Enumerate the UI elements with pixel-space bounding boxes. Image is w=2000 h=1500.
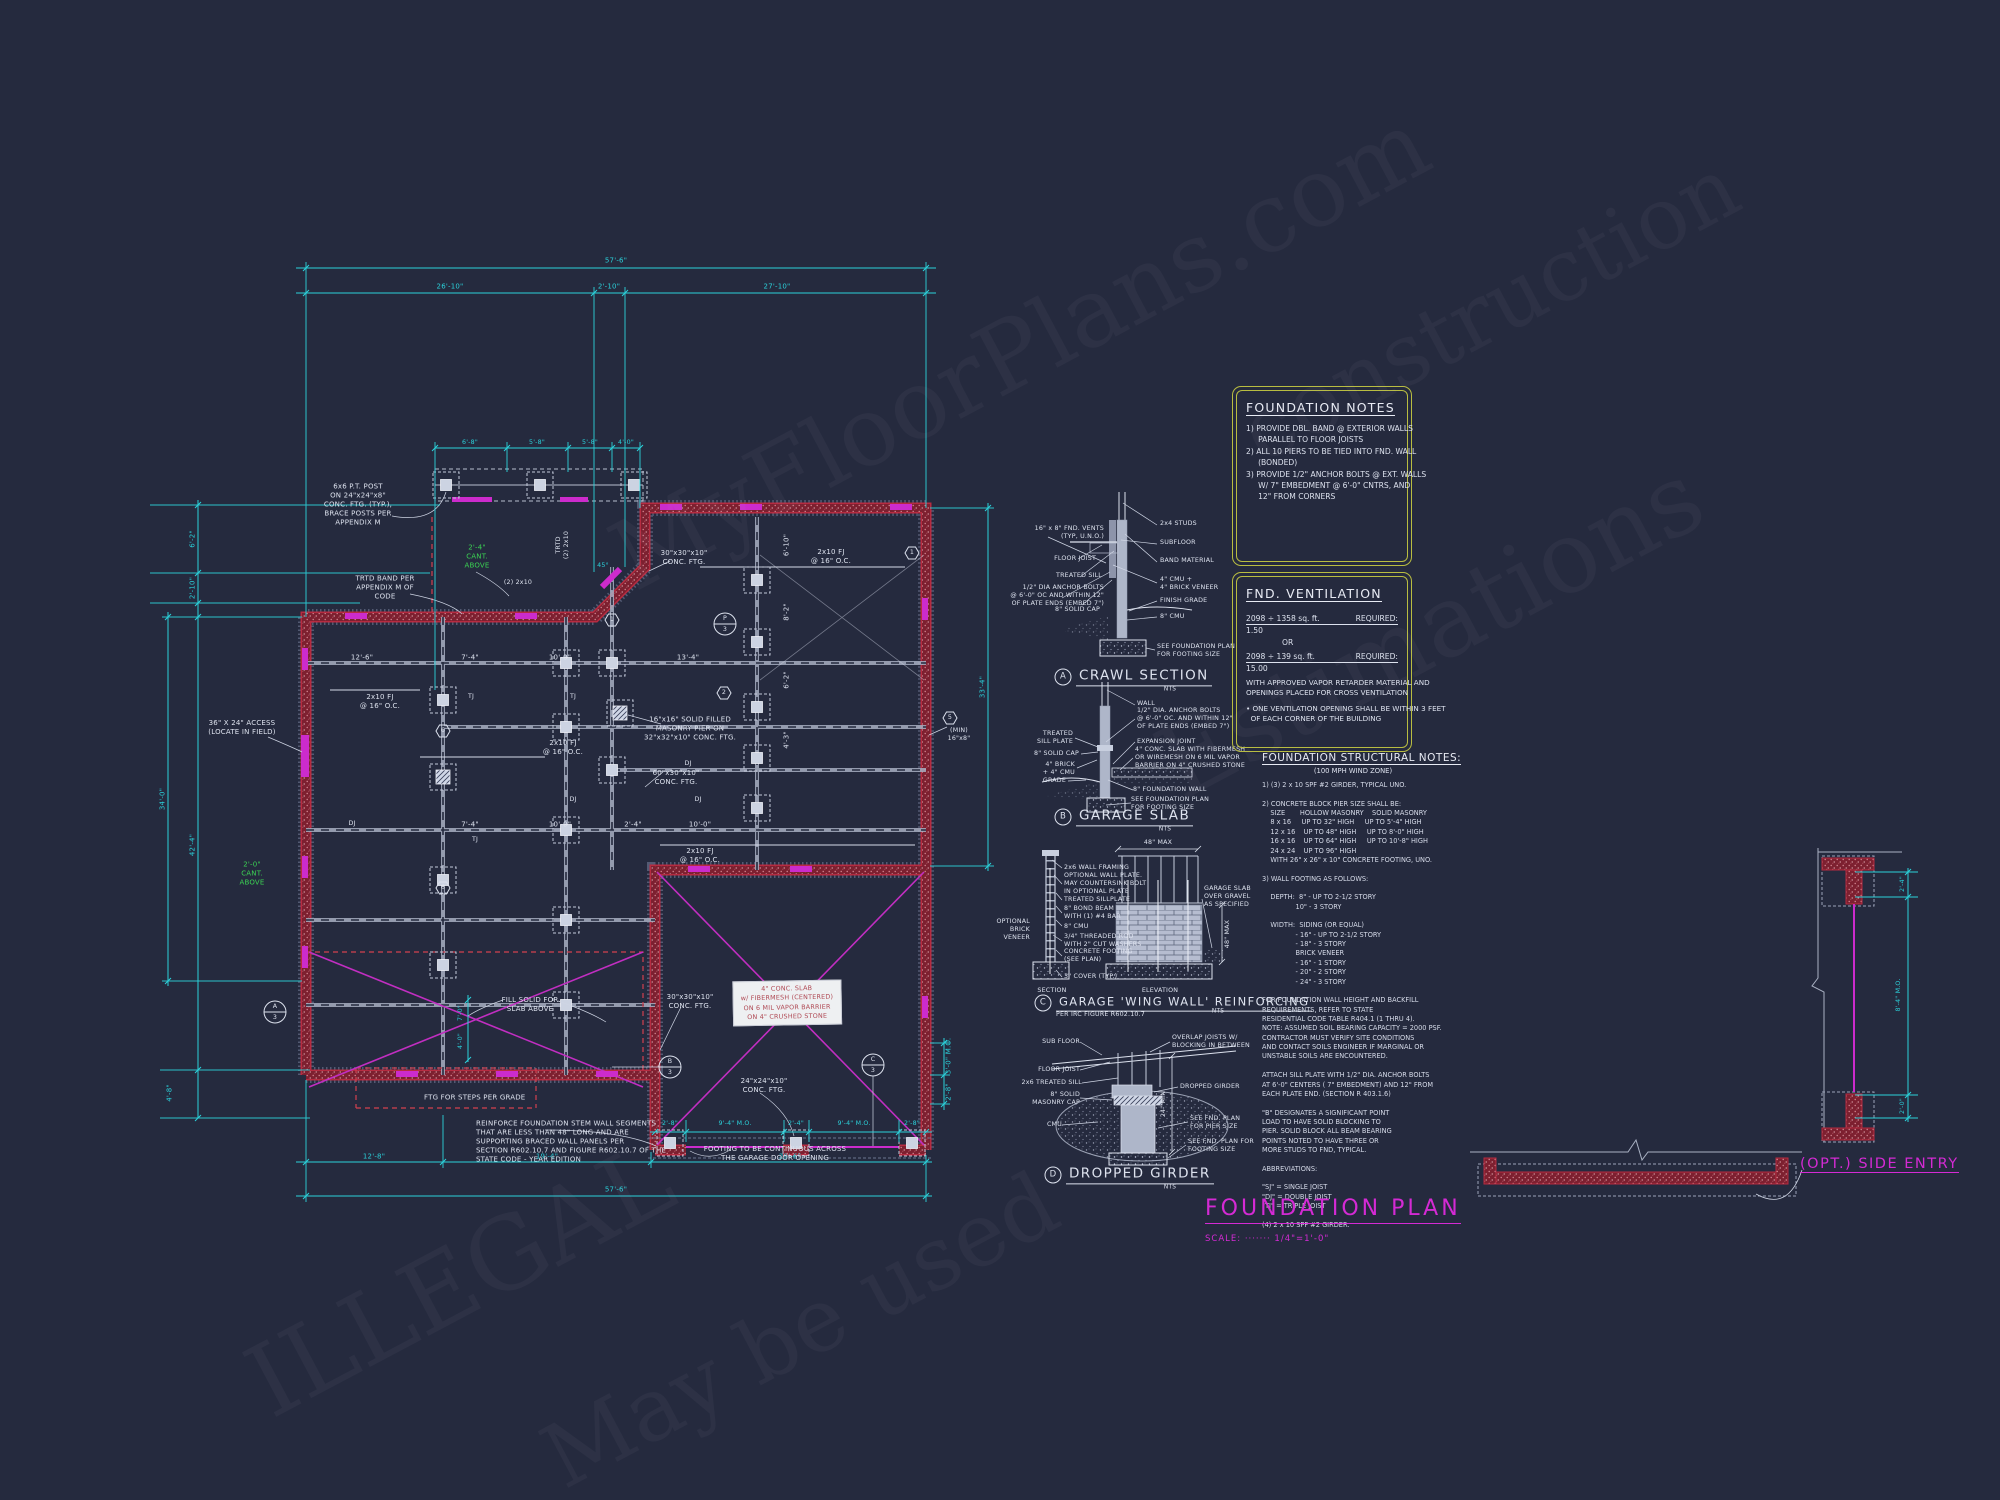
dim-label: 8'-2" <box>783 603 792 621</box>
sheet-title: FOUNDATION PLAN <box>1205 1196 1461 1224</box>
dim-label: 2'-0" <box>1899 1098 1907 1114</box>
cantilever-note: 2'-0" CANT. ABOVE <box>239 861 264 888</box>
detail-label: 3/4" THREADED ROD WITH 2" CUT WASHERS <box>1064 933 1142 949</box>
post-note: 6x6 P.T. POST ON 24"x24"x8" CONC. FTG. (… <box>324 483 392 528</box>
ventilation-calc: 2098 ÷ 139 sq. ft. <box>1246 652 1315 661</box>
detail-label: 2x6 WALL FRAMING <box>1064 864 1129 872</box>
detail-title: CRAWL SECTION <box>1076 667 1212 686</box>
dim-label: 9'-4" M.O. <box>837 1120 870 1128</box>
dim-label: 7'-4" <box>461 821 479 830</box>
detail-label: 8" CMU <box>1160 613 1185 621</box>
ventilation-value: 15.00 <box>1246 664 1398 673</box>
detail-label: DROPPED GIRDER <box>1180 1083 1240 1091</box>
detail-label: OVERLAP JOISTS W/ BLOCKING IN BETWEEN <box>1172 1034 1250 1050</box>
reinforce-note: REINFORCE FOUNDATION STEM WALL SEGMENTS … <box>476 1120 666 1165</box>
detail-dim: 24" MIN <box>1160 1091 1168 1117</box>
dim-label: 6'-8" <box>462 439 478 447</box>
dim-label: 7'-4" <box>461 654 479 663</box>
section-marker-sheet: 3 <box>668 1069 672 1077</box>
footing-note: 30"x30"x10" CONC. FTG. <box>667 993 714 1011</box>
joist-tag: TJ <box>570 693 576 701</box>
detail-label: 8" SOLID CAP <box>1055 606 1100 614</box>
dim-label: 8'-4" M.O. <box>1895 978 1903 1011</box>
joist-tag: DJ <box>684 760 691 768</box>
detail-label: FLOOR JOIST <box>1038 1066 1080 1074</box>
dim-label: 2'-8" <box>945 1083 954 1101</box>
ventilation-required: REQUIRED: <box>1356 614 1398 623</box>
joist-note: 2x10 FJ @ 16" O.C. <box>811 548 851 566</box>
footing-note: 30"x30"x10" CONC. FTG. <box>661 549 708 567</box>
detail-letter: B <box>1060 812 1066 823</box>
detail-letter: D <box>1050 1170 1057 1181</box>
detail-label: SEE FOUNDATION PLAN FOR FOOTING SIZE <box>1157 643 1235 659</box>
ventilation-required: REQUIRED: <box>1356 652 1398 661</box>
joist-note: 2x10 FJ @ 16" O.C. <box>680 847 720 865</box>
dim-label: 9'-4" M.O. <box>718 1120 751 1128</box>
section-marker-sheet: 3 <box>871 1067 875 1075</box>
dim-label: 57'-6" <box>605 257 627 266</box>
detail-label: TREATED SILL PLATE <box>1037 730 1073 746</box>
detail-label: FINISH GRADE <box>1160 597 1207 605</box>
section-marker-letter: A <box>273 1003 278 1011</box>
pier-marker: 1 <box>910 549 914 557</box>
ventilation-title: FND. VENTILATION <box>1246 586 1382 602</box>
dim-label: 4'-0" <box>618 439 634 447</box>
detail-label: 8" BOND BEAM WITH (1) #4 BAR <box>1064 905 1121 921</box>
section-marker-sheet: 3 <box>723 626 727 634</box>
detail-label: SUBFLOOR <box>1160 539 1196 547</box>
detail-label: BAND MATERIAL <box>1160 557 1214 565</box>
detail-label: TREATED SILLPLATE <box>1064 896 1130 904</box>
dim-label: 10'-0" <box>549 821 571 830</box>
detail-title: DROPPED GIRDER <box>1066 1165 1214 1184</box>
detail-label: OPTIONAL WALL PLATE. MAY COUNTERSINK BOL… <box>1064 872 1146 896</box>
detail-label: 16" x 8" FND. VENTS (TYP, U.N.O.) <box>1035 525 1104 541</box>
footing-continuous-note: FOOTING TO BE CONTINUOUS ACROSS THE GARA… <box>704 1145 846 1163</box>
ventilation-para: WITH APPROVED VAPOR RETARDER MATERIAL AN… <box>1246 678 1398 699</box>
footing-note: 60"x30"x10" CONC. FTG. <box>653 769 700 787</box>
foundation-notes-title: FOUNDATION NOTES <box>1246 400 1395 416</box>
detail-label: 4" CMU + 4" BRICK VENEER <box>1160 576 1218 592</box>
dim-label: 2'-4" <box>624 821 642 830</box>
joist-tag: TJ <box>472 836 478 844</box>
garage-slab-note: 4" CONC. SLAB w/ FIBERMESH (CENTERED) ON… <box>732 979 841 1026</box>
dim-label: 27'-10" <box>764 283 791 292</box>
detail-label: 8" FOUNDATION WALL <box>1133 786 1207 794</box>
dim-label: 5'-8" <box>529 439 545 447</box>
ventilation-inner: FND. VENTILATION 2098 ÷ 1358 sq. ft. REQ… <box>1236 576 1408 748</box>
detail-scale: NTS <box>1159 826 1171 833</box>
angle-label: 45° <box>597 562 609 570</box>
joist-tag: DJ <box>569 796 576 804</box>
section-marker-sheet: 3 <box>273 1014 277 1022</box>
detail-dim: 48" MAX <box>1144 839 1172 847</box>
dim-label: 26'-10" <box>437 283 464 292</box>
dim-label: 33'-4" <box>979 676 988 698</box>
ventilation-bullet: • ONE VENTILATION OPENING SHALL BE WITHI… <box>1246 704 1398 725</box>
joist-note: 2x10 FJ @ 16" O.C. <box>360 693 400 711</box>
cantilever-note: 2'-4" CANT. ABOVE <box>464 544 489 571</box>
ventilation-value: 1.50 <box>1246 626 1398 635</box>
structural-notes-subtitle: (100 MPH WIND ZONE) <box>1262 767 1444 775</box>
detail-label: 8" SOLID MASONRY CAP <box>1032 1091 1080 1107</box>
dim-label: 4'-3" <box>783 731 792 749</box>
joist-tag: TJ <box>468 693 474 701</box>
dim-label: 2'-10" <box>598 283 620 292</box>
detail-scale: NTS <box>1164 1184 1176 1191</box>
detail-label: SUB FLOOR <box>1042 1038 1080 1046</box>
ventilation-or: OR <box>1282 638 1398 647</box>
detail-label: 4" CONC. SLAB WITH FIBERMESH OR WIREMESH… <box>1135 746 1245 770</box>
ventilation-box: FND. VENTILATION 2098 ÷ 1358 sq. ft. REQ… <box>1232 572 1412 752</box>
ventilation-row: 2098 ÷ 1358 sq. ft. REQUIRED: <box>1246 614 1398 625</box>
dim-label: 6'-10" <box>783 534 792 556</box>
detail-label: 1/2" DIA ANCHOR BOLTS @ 6'-0" OC AND WIT… <box>1010 584 1104 608</box>
section-marker-letter: C <box>871 1056 876 1064</box>
vent-min-note: (MIN) 16"x8" <box>948 727 971 743</box>
dim-label: 3'-0" M.O. <box>945 1038 954 1075</box>
dim-label: 7'-0" <box>457 1005 465 1021</box>
steps-note: FTG FOR STEPS PER GRADE <box>424 1094 525 1103</box>
pier-marker: 6 <box>441 727 445 735</box>
detail-label: CMU <box>1047 1121 1062 1129</box>
detail-label: OPTIONAL BRICK VENEER <box>996 918 1030 942</box>
dim-label: 2'-4" <box>1899 876 1907 892</box>
footing-note: 24"x24"x10" CONC. FTG. <box>741 1077 788 1095</box>
dim-label: 5'-8" <box>582 439 598 447</box>
side-entry-title: (OPT.) SIDE ENTRY <box>1800 1156 1959 1173</box>
joist-tag: DJ <box>348 820 355 828</box>
detail-label: 8" SOLID CAP <box>1034 750 1079 758</box>
sheet-scale: SCALE: ······· 1/4"=1'-0" <box>1205 1234 1329 1244</box>
detail-label: SEE FND. PLAN FOR PIER SIZE <box>1190 1115 1240 1131</box>
access-note: 36" X 24" ACCESS (LOCATE IN FIELD) <box>208 719 275 737</box>
detail-scale: NTS <box>1164 686 1176 693</box>
dim-label: 10'-0" <box>689 821 711 830</box>
dim-label: 6'-2" <box>783 671 792 689</box>
pier-marker: 2 <box>722 689 726 697</box>
structural-notes: FOUNDATION STRUCTURAL NOTES: (100 MPH WI… <box>1262 746 1444 1230</box>
detail-label: GRADE <box>1043 777 1066 785</box>
detail-label: FLOOR JOIST <box>1054 555 1096 563</box>
foundation-notes-box: FOUNDATION NOTES 1) PROVIDE DBL. BAND @ … <box>1232 386 1412 566</box>
detail-label: 8" CMU <box>1064 923 1089 931</box>
detail-label: 1/2" DIA. ANCHOR BOLTS @ 6'-0" OC. AND W… <box>1137 707 1233 731</box>
header-note: (2) 2x10 <box>504 579 532 587</box>
joist-tag: DJ <box>694 796 701 804</box>
foundation-notes-inner: FOUNDATION NOTES 1) PROVIDE DBL. BAND @ … <box>1236 390 1408 562</box>
detail-label: 2x6 TREATED SILL <box>1021 1079 1082 1087</box>
ventilation-row: 2098 ÷ 139 sq. ft. REQUIRED: <box>1246 652 1398 663</box>
dim-label: 4'-8" <box>166 1084 175 1102</box>
blueprint-canvas: 57'-6" 26'-10" 2'-10" 27'-10" 6'-2" 2'-1… <box>0 0 2000 1500</box>
dim-label: 6'-2" <box>189 530 198 548</box>
section-marker-letter: P <box>723 615 727 623</box>
dim-label: 12'-8" <box>363 1153 385 1162</box>
joist-note: 2x10 FJ @ 16" O.C. <box>543 739 583 757</box>
detail-label: 3" COVER (TYP.) <box>1064 973 1117 981</box>
detail-title: GARAGE SLAB <box>1076 807 1193 826</box>
dim-label: 2'-10" <box>189 577 198 599</box>
structural-notes-body: 1) (3) 2 x 10 SPF #2 GIRDER, TYPICAL UNO… <box>1262 781 1444 1230</box>
dim-label: 4'-0" <box>457 1033 465 1049</box>
band-note: TRTD BAND PER APPENDIX M OF CODE <box>355 575 414 602</box>
dim-label: 2'-4" <box>788 1120 804 1128</box>
deck-band-note: TRTD (2) 2x10 <box>555 531 571 559</box>
dim-label: 2'-8" <box>904 1120 920 1128</box>
detail-label: GARAGE SLAB OVER GRAVEL AS SPECIFIED <box>1204 885 1251 909</box>
cad-linework <box>0 0 2000 1500</box>
dim-label: 13'-4" <box>677 654 699 663</box>
detail-label: EXPANSION JOINT <box>1137 738 1195 746</box>
ventilation-calc: 2098 ÷ 1358 sq. ft. <box>1246 614 1320 623</box>
dim-label: 12'-6" <box>351 654 373 663</box>
detail-label: TREATED SILL <box>1056 572 1102 580</box>
pier-note: 16"x16" SOLID FILLED MASONRY PIER ON 32"… <box>644 716 736 743</box>
detail-label: 2x4 STUDS <box>1160 520 1197 528</box>
detail-scale: NTS <box>1212 1008 1224 1015</box>
pier-marker: 1 <box>610 616 614 624</box>
structural-notes-title: FOUNDATION STRUCTURAL NOTES: <box>1262 752 1461 765</box>
detail-label: SEE FND. PLAN FOR FOOTING SIZE <box>1188 1138 1254 1154</box>
detail-label: 4" BRICK + 4" CMU <box>1043 761 1075 777</box>
detail-letter: A <box>1060 672 1066 683</box>
dim-label: 42'-4" <box>189 834 198 856</box>
detail-dim: 48" MAX <box>1224 920 1232 948</box>
dim-label: 34'-0" <box>159 788 168 810</box>
detail-label: CONCRETE FOOTING (SEE PLAN) <box>1064 948 1133 964</box>
dim-label: 10'-0" <box>549 654 571 663</box>
pier-marker: 6 <box>441 884 445 892</box>
detail-letter: C <box>1040 998 1046 1009</box>
pier-marker: 5 <box>948 714 952 722</box>
fill-solid-note: FILL SOLID FOR SLAB ABOVE <box>502 996 559 1014</box>
dim-label: 57'-6" <box>605 1186 627 1195</box>
section-marker-letter: B <box>668 1058 673 1066</box>
detail-subtitle: PER IRC FIGURE R602.10.7 <box>1056 1011 1145 1019</box>
foundation-notes-body: 1) PROVIDE DBL. BAND @ EXTERIOR WALLS PA… <box>1246 423 1398 503</box>
